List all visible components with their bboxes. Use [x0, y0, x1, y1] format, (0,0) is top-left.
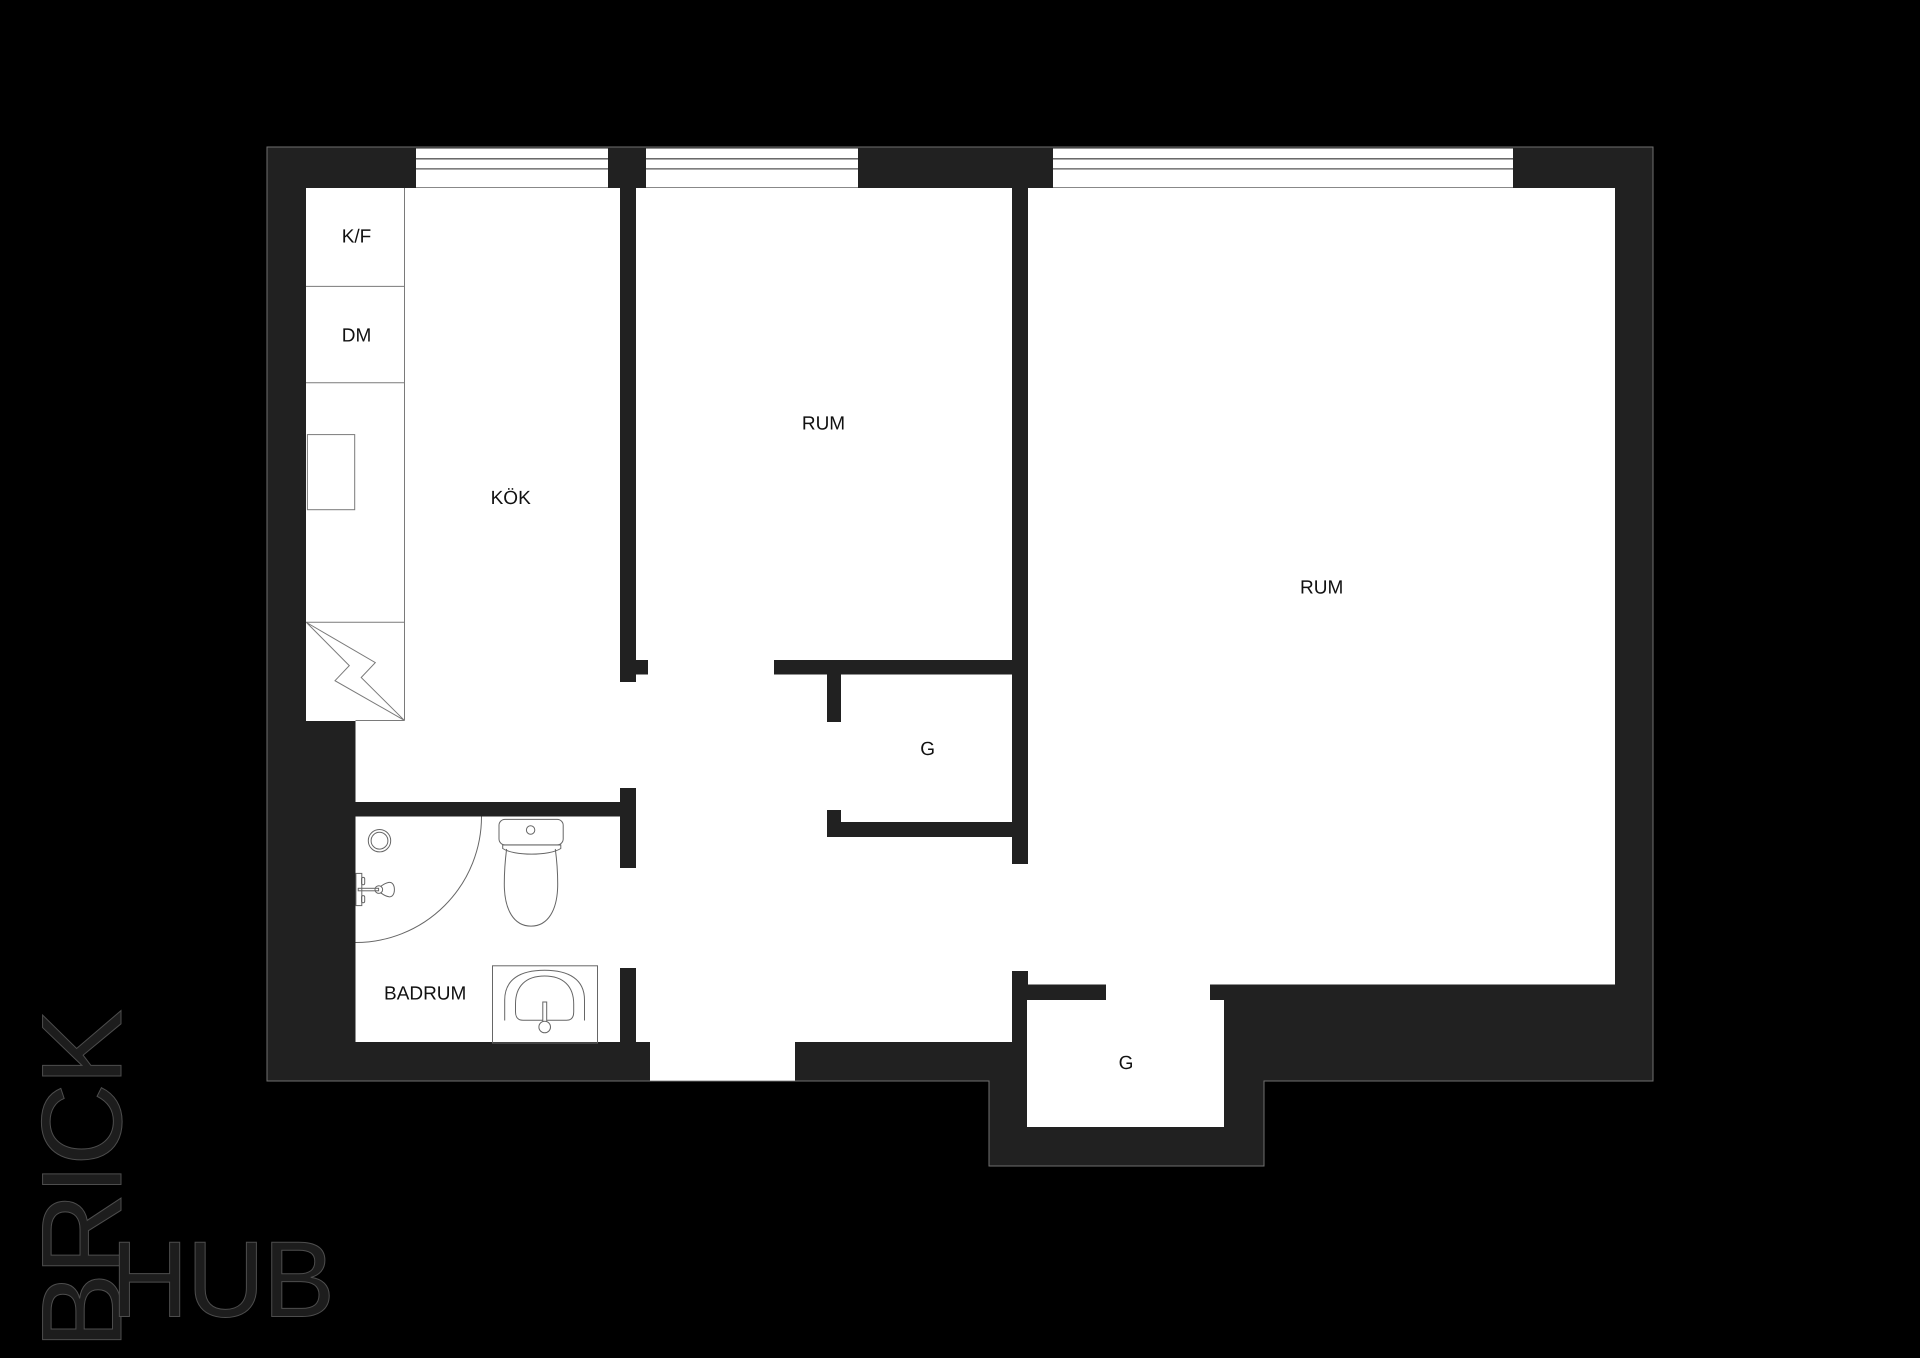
svg-text:G: G — [1119, 1053, 1134, 1074]
svg-text:HUB: HUB — [111, 1219, 334, 1340]
svg-text:KÖK: KÖK — [491, 488, 531, 509]
svg-text:G: G — [920, 739, 935, 760]
svg-text:RUM: RUM — [802, 413, 845, 434]
svg-text:RUM: RUM — [1300, 578, 1343, 599]
svg-text:DM: DM — [342, 326, 372, 347]
svg-text:BADRUM: BADRUM — [384, 984, 466, 1005]
svg-text:K/F: K/F — [342, 227, 372, 248]
